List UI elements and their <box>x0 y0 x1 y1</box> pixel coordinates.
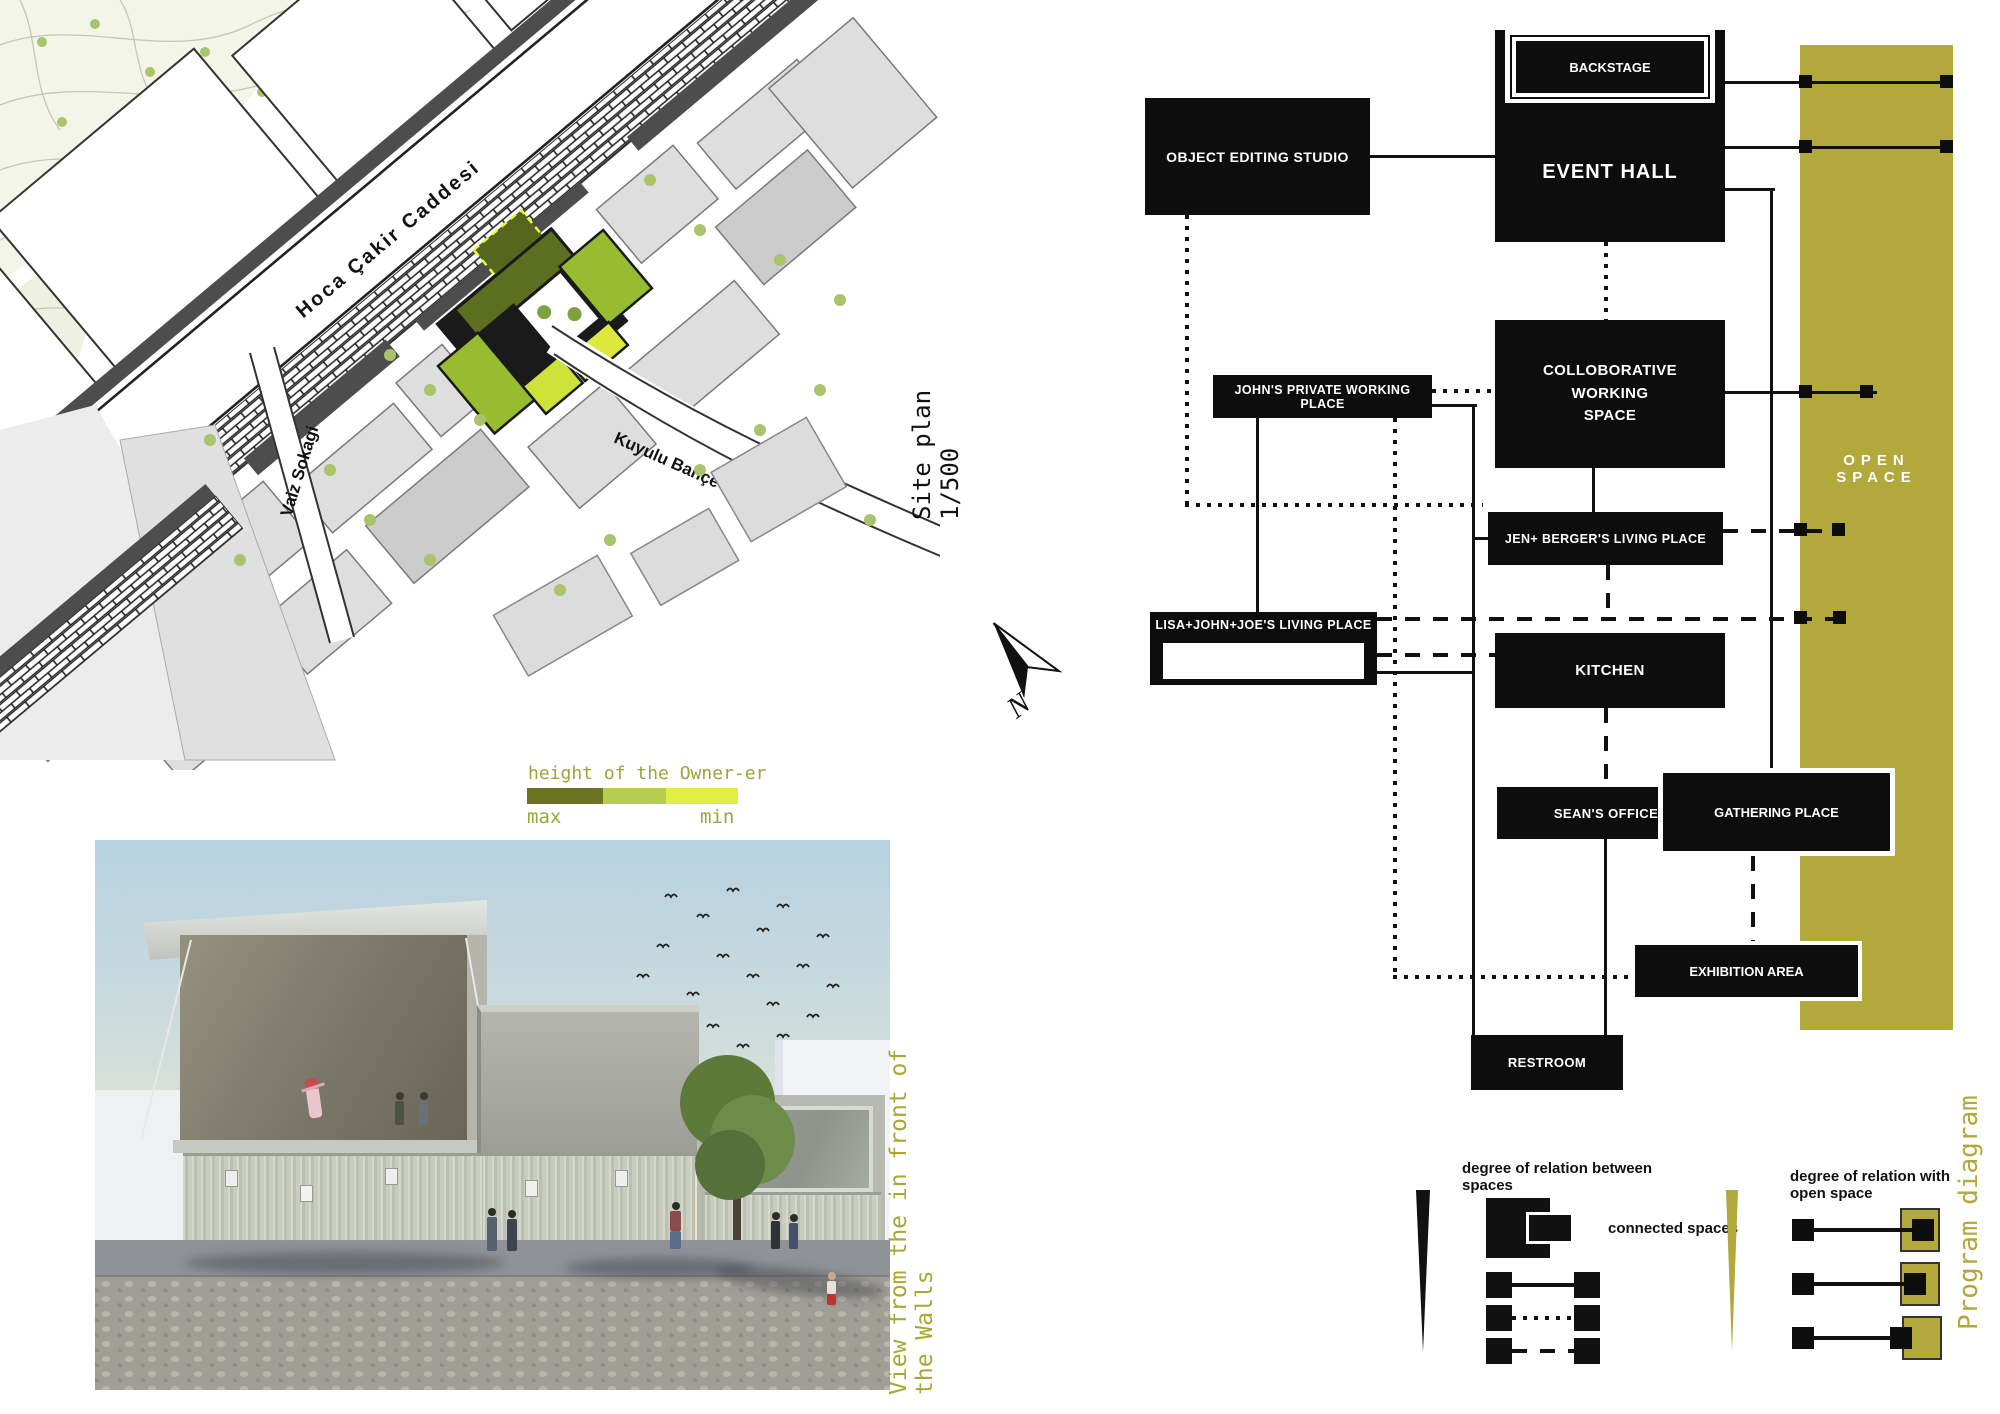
height-legend-max: max <box>527 806 561 828</box>
relation-node <box>1799 140 1812 153</box>
legend-node <box>1574 1305 1600 1331</box>
stage-floor-slab <box>173 1140 487 1153</box>
black-wedge-icon <box>1416 1190 1430 1352</box>
pedestrian <box>670 1202 681 1249</box>
legend-line <box>1814 1282 1908 1286</box>
program-diagram-caption: Program diagram <box>1954 1095 1984 1330</box>
pedestrian <box>487 1208 497 1251</box>
box-exhibition-area: EXHIBITION AREA <box>1631 941 1862 1001</box>
connector-dotted <box>1185 215 1189 506</box>
connector-line <box>1370 155 1495 158</box>
connector-line <box>1432 404 1477 407</box>
presentation-board: Hoca Çakir Caddesi <box>0 0 2000 1414</box>
legend-node <box>1792 1273 1814 1295</box>
render-view-image <box>95 840 890 1390</box>
legend-node <box>1890 1327 1912 1349</box>
legend-node <box>1574 1272 1600 1298</box>
box-johns-private-working-place: JOHN'S PRIVATE WORKING PLACE <box>1213 375 1432 418</box>
box-jen-bergers-living-place: JEN+ BERGER'S LIVING PLACE <box>1488 512 1723 565</box>
cobblestone-pavement <box>95 1275 890 1390</box>
height-legend-bar <box>527 788 738 804</box>
box-lisa-john-joes-living-place: LISA+JOHN+JOE'S LIVING PLACE LISA'S PRIV… <box>1150 612 1377 685</box>
render-view-caption: View from the in front of the Walls <box>886 1005 938 1395</box>
building-shadow <box>185 1252 505 1274</box>
legend-node <box>1574 1338 1600 1364</box>
connector-dashed <box>1606 565 1610 621</box>
connector-line <box>1472 537 1488 540</box>
legend-node <box>1792 1327 1814 1349</box>
legend-between-spaces-title: degree of relation between spaces <box>1462 1160 1692 1194</box>
slatted-facade-left <box>183 1153 483 1243</box>
pedestrian <box>771 1212 780 1249</box>
gathering-place-label: GATHERING PLACE <box>1663 773 1890 851</box>
poster <box>525 1180 538 1197</box>
connector-line <box>1770 188 1773 768</box>
legend-node <box>1912 1219 1934 1241</box>
poster <box>385 1168 398 1185</box>
relation-node <box>1799 385 1812 398</box>
exhibition-area-label: EXHIBITION AREA <box>1635 945 1858 997</box>
connector-dashed <box>1377 653 1495 657</box>
connector-line <box>1592 468 1595 512</box>
north-label: N <box>1000 685 1038 725</box>
connected-spaces-label: connected spaces <box>1608 1220 1738 1237</box>
relation-node <box>1860 385 1873 398</box>
box-restroom: RESTROOM <box>1471 1035 1623 1090</box>
connector-dotted <box>1432 389 1495 393</box>
relation-node <box>1940 140 1953 153</box>
connector-line <box>1725 188 1775 191</box>
connector-dashed <box>1604 708 1608 787</box>
connector-line <box>1725 146 1953 149</box>
connected-spaces-icon-inner <box>1526 1212 1574 1244</box>
plaza-area <box>0 405 851 760</box>
legend-node <box>1486 1338 1512 1364</box>
connector-dotted <box>1185 503 1483 507</box>
height-bar-min-segment <box>666 788 738 804</box>
poster <box>300 1185 313 1202</box>
lisas-private-label: LISA'S PRIVATE WORKING PLACE <box>1166 646 1361 676</box>
connector-line <box>1604 839 1607 1035</box>
legend-node <box>1792 1219 1814 1241</box>
connector-line <box>1472 404 1475 1035</box>
height-bar-mid-segment <box>603 788 666 804</box>
box-gathering-place: GATHERING PLACE <box>1658 768 1895 856</box>
relation-node <box>1794 611 1807 624</box>
lisa-john-joes-label: LISA+JOHN+JOE'S LIVING PLACE <box>1155 618 1371 632</box>
backstage-label: BACKSTAGE <box>1516 41 1704 93</box>
site-plan-caption: Site plan 1/500 <box>908 330 964 520</box>
box-kitchen: KITCHEN <box>1495 633 1725 708</box>
relation-node <box>1799 75 1812 88</box>
relation-node <box>1832 523 1845 536</box>
legend-dotted-line <box>1512 1316 1574 1320</box>
connector-dotted <box>1604 242 1608 320</box>
legend-node <box>1486 1305 1512 1331</box>
north-arrow-icon: N <box>968 612 1078 727</box>
legend-dashed-line <box>1512 1349 1574 1353</box>
site-plan-map: Hoca Çakir Caddesi <box>0 0 940 770</box>
box-lisas-private-working-place: LISA'S PRIVATE WORKING PLACE <box>1163 643 1364 679</box>
legend-node <box>1904 1273 1926 1295</box>
connector-line <box>1377 671 1475 674</box>
stage-person <box>419 1092 428 1125</box>
pedestrian <box>789 1214 798 1249</box>
connector-dashed <box>1723 529 1845 533</box>
connector-line <box>1725 81 1953 84</box>
legend-node <box>1486 1272 1512 1298</box>
open-space-label: OPEN SPACE <box>1800 452 1953 486</box>
legend-open-space-title: degree of relation with open space <box>1790 1168 1990 1202</box>
olive-wedge-icon <box>1726 1190 1738 1352</box>
stage-person <box>395 1092 404 1125</box>
box-object-editing-studio: OBJECT EDITING STUDIO <box>1145 98 1370 215</box>
connector-line <box>1256 418 1259 612</box>
relation-node <box>1940 75 1953 88</box>
connector-dashed <box>1751 856 1755 941</box>
pedestrian <box>507 1210 517 1251</box>
poster <box>615 1170 628 1187</box>
legend-line <box>1814 1336 1898 1340</box>
box-event-hall: EVENT HALL <box>1495 103 1725 242</box>
connector-dotted <box>1393 418 1397 978</box>
height-legend-min: min <box>700 806 734 828</box>
pedestrian-child <box>827 1272 836 1305</box>
box-backstage: BACKSTAGE <box>1510 35 1710 99</box>
height-legend-title: height of the Owner-er <box>528 763 766 784</box>
box-colloborative-working-space: COLLOBORATIVE WORKING SPACE <box>1495 320 1725 468</box>
open-space-strip <box>1800 45 1953 1030</box>
relation-node <box>1833 611 1846 624</box>
tree-foliage <box>695 1130 765 1200</box>
connected-spaces-icon-core <box>1529 1215 1571 1241</box>
concrete-box-middle <box>477 1005 699 1160</box>
legend-line <box>1814 1228 1914 1232</box>
connector-dotted <box>1393 975 1633 979</box>
poster <box>225 1170 238 1187</box>
legend-solid-line <box>1512 1283 1574 1287</box>
relation-node <box>1794 523 1807 536</box>
height-bar-max-segment <box>527 788 603 804</box>
